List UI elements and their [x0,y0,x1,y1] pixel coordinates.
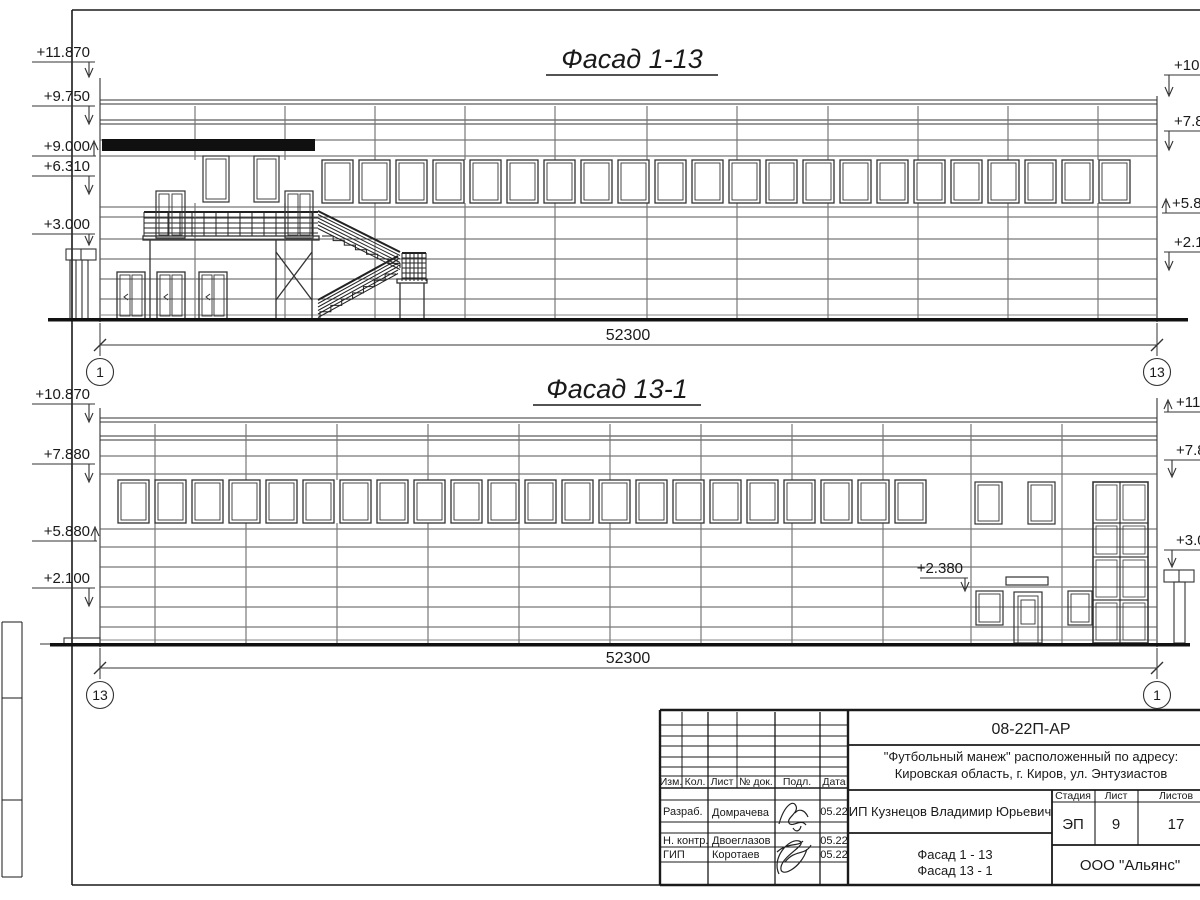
tb-date: 05.22 [820,806,848,818]
axis-bubble-label: 1 [96,364,104,380]
stage-value: ЭП [1062,816,1084,833]
stage-label: Стадия [1055,790,1091,802]
tb-col-podl: Подл. [783,776,811,788]
tb-col-izm: Изм. [660,776,683,788]
tb-col-list: Лист [711,776,734,788]
elevation-mark: +11.8 [1176,394,1200,411]
elevation-mark: +5.8 [1172,195,1200,212]
elevation-mark: +2.1 [1174,234,1200,251]
paper [0,0,1200,900]
drawing-sheet: Фасад 1-13 [0,0,1200,900]
elevation-mark: +11.870 [36,44,90,61]
dimension-label: 52300 [606,650,651,667]
elevation-mark: +5.880 [44,523,90,540]
tb-col-data: Дата [822,776,845,788]
drawing-name-line1: Фасад 1 - 13 [917,847,992,862]
company-name: ООО "Альянс" [1080,857,1180,874]
sheets-label: Листов [1159,790,1194,802]
elevation-mark: +10.8 [1174,57,1200,74]
facade1-title: Фасад 1-13 [561,44,702,74]
sheets-value: 17 [1168,816,1185,833]
tb-col-kol: Кол. [685,776,706,788]
axis-bubble-label: 13 [1149,364,1165,380]
tb-name: Двоеглазов [712,835,771,847]
sheet-value: 9 [1112,816,1120,833]
axis-bubble-label: 13 [92,687,108,703]
client-name: ИП Кузнецов Владимир Юрьевич [849,804,1051,819]
elevation-mark: +3.0 [1176,532,1200,549]
drawing-name-line2: Фасад 13 - 1 [917,863,992,878]
ground-line [48,318,1188,322]
ground-line [50,643,1190,647]
canopy-band [102,139,315,151]
elevation-mark: +7.8 [1174,113,1200,130]
elevation-mark: +9.000 [44,138,90,155]
tb-role: ГИП [663,849,685,861]
elevation-mark: +10.870 [35,386,90,403]
tb-role: Н. контр. [663,835,708,847]
sheet-label: Лист [1105,790,1128,802]
project-address-line2: Кировская область, г. Киров, ул. Энтузиа… [895,766,1168,781]
tb-name: Коротаев [712,849,760,861]
tb-role: Разраб. [663,806,703,818]
elevation-mark: +3.000 [44,216,90,233]
project-address-line1: "Футбольный манеж" расположенный по адре… [884,749,1178,764]
elevation-mark: +6.310 [44,158,90,175]
tb-date: 05.22 [820,835,848,847]
tb-col-ndok: № док. [739,776,773,788]
doc-number: 08-22П-АР [991,721,1070,738]
tb-name: Домрачева [712,807,770,819]
facade2-title: Фасад 13-1 [546,374,687,404]
elevation-mark: +7.880 [44,446,90,463]
elevation-mark: +7.8 [1176,442,1200,459]
elevation-mark: +9.750 [44,88,90,105]
dimension-label: 52300 [606,327,651,344]
elevation-mark: +2.100 [44,570,90,587]
tb-date: 05.22 [820,849,848,861]
elevation-mark: +2.380 [917,560,963,577]
axis-bubble-label: 1 [1153,687,1161,703]
